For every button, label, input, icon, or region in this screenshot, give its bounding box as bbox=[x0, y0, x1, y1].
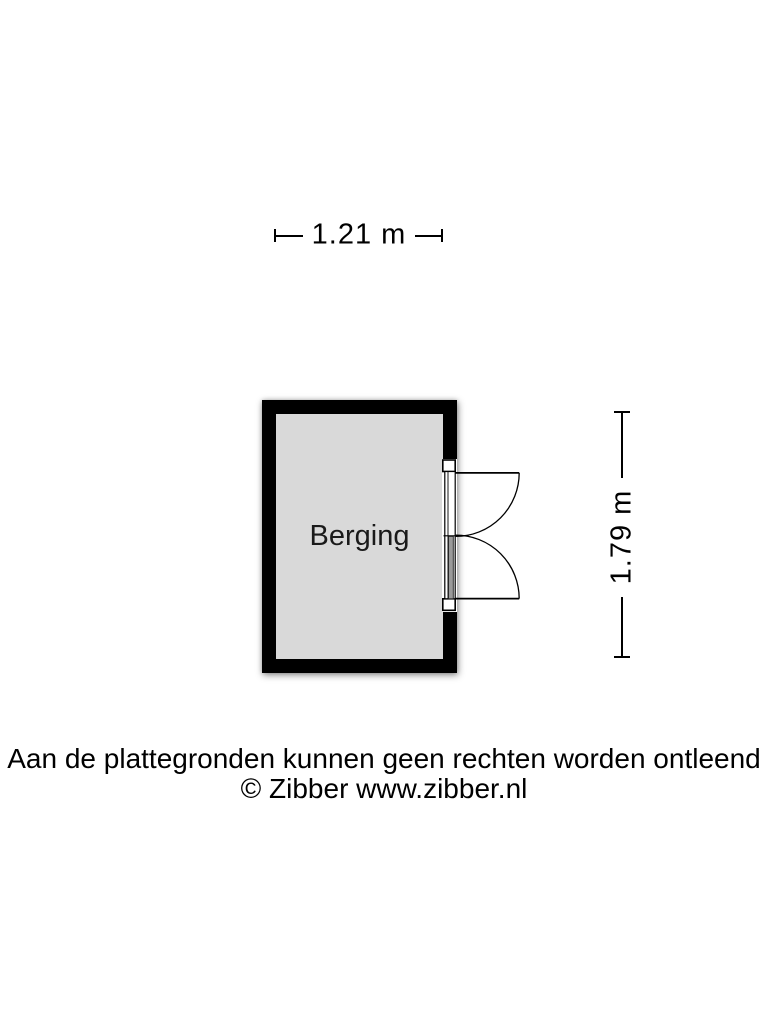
floorplan-canvas: 1.21 m Berging 1.79 m Aan bbox=[0, 0, 768, 1024]
width-dimension-label: 1.21 m bbox=[312, 219, 407, 252]
dimension-line-right bbox=[415, 235, 441, 237]
room-berging-walls: Berging bbox=[262, 400, 457, 673]
door-jamb-bottom bbox=[443, 599, 455, 611]
dimension-line-left bbox=[276, 235, 303, 237]
footer: Aan de plattegronden kunnen geen rechten… bbox=[0, 744, 768, 804]
dimension-line-top bbox=[621, 413, 623, 478]
door-leaf-closed bbox=[449, 536, 454, 599]
dimension-tick-bottom bbox=[614, 656, 630, 658]
door-swing-arc-bottom bbox=[456, 535, 520, 599]
disclaimer-text: Aan de plattegronden kunnen geen rechten… bbox=[0, 744, 768, 774]
room-name-label: Berging bbox=[310, 520, 410, 553]
door-swing-arc-top bbox=[456, 473, 520, 537]
height-dimension-label: 1.79 m bbox=[606, 490, 639, 585]
door-jamb-top bbox=[443, 460, 455, 472]
dimension-line-bottom bbox=[621, 597, 623, 656]
room-berging-floor: Berging bbox=[276, 414, 443, 659]
dimension-tick-right bbox=[441, 229, 443, 242]
copyright-text: © Zibber www.zibber.nl bbox=[0, 774, 768, 804]
double-swing-door-icon bbox=[438, 452, 538, 616]
